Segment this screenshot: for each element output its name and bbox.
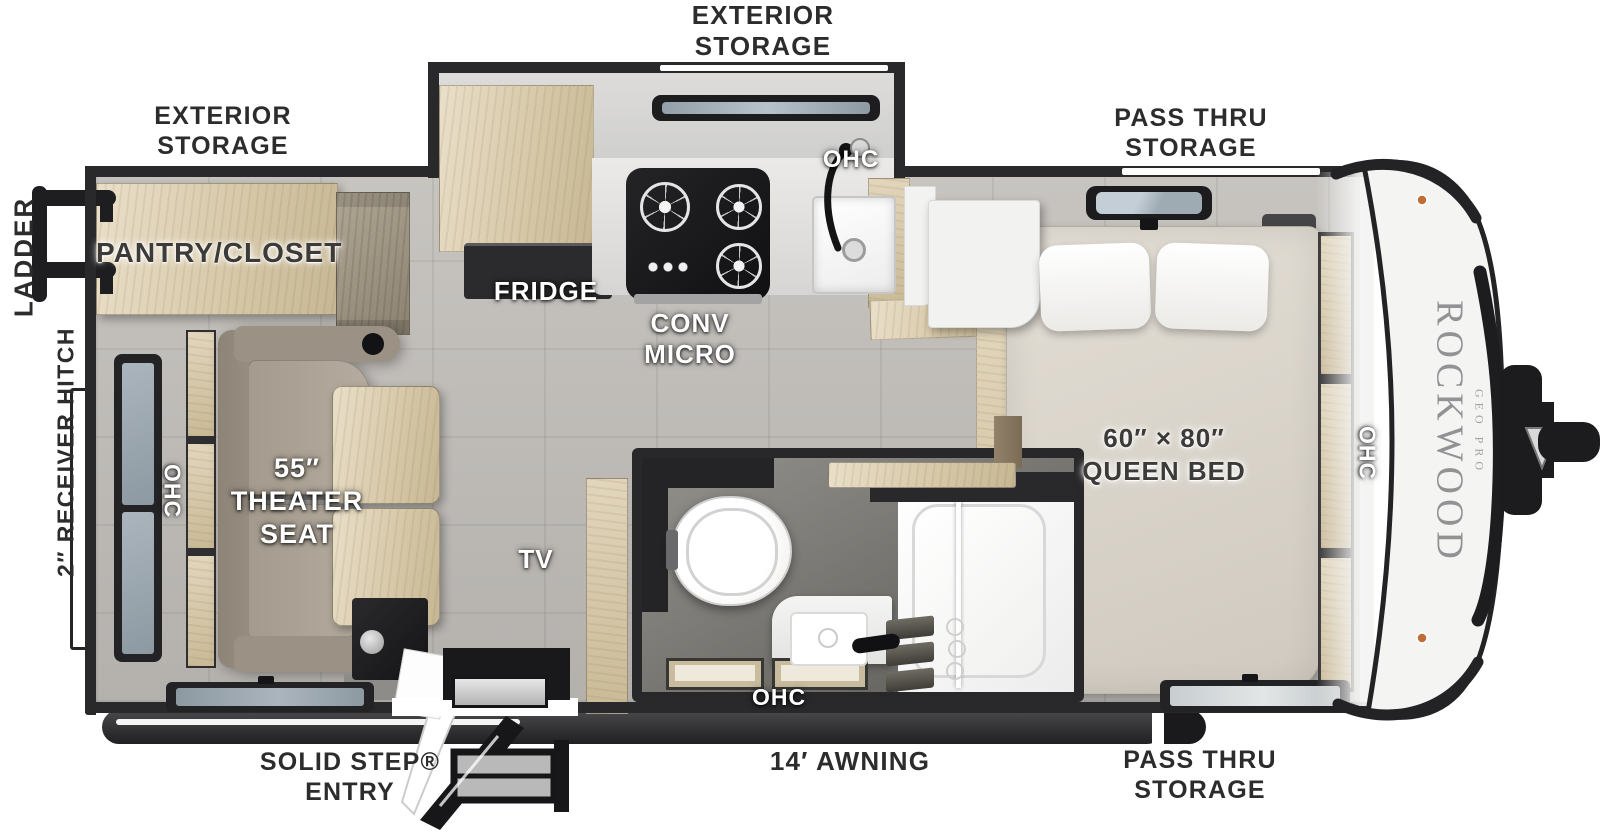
label-conv-micro: CONV MICRO <box>632 308 748 369</box>
cooktop-trim <box>634 294 762 304</box>
brand-make: ROCKWOOD <box>1428 300 1472 564</box>
label-ohc-bed: OHC <box>1353 426 1380 480</box>
cap-branding: GEO PRO ROCKWOOD <box>1428 300 1487 564</box>
slideout-wall-left <box>428 62 439 178</box>
wall-left <box>85 166 96 715</box>
shower-rod <box>956 496 961 688</box>
label-ohc-rear: OHC <box>158 464 185 518</box>
rear-window <box>114 354 162 662</box>
rear-window-glass-bottom <box>122 512 154 654</box>
skylight-glass <box>1096 192 1202 214</box>
bottom-window-left <box>166 682 374 712</box>
pantry-side-cabinet <box>336 192 410 335</box>
ohc-cabinet-rear <box>186 330 216 668</box>
floorplan-canvas: GEO PRO ROCKWOOD EXTERIOR STORAGE PASS T… <box>0 0 1600 832</box>
label-ohc-kitchen: OHC <box>814 146 888 174</box>
awning-roller <box>102 710 1164 744</box>
ohc-rear-door <box>188 556 214 666</box>
burner <box>716 184 762 230</box>
label-pass-thru-storage-top: PASS THRU STORAGE <box>1096 104 1286 163</box>
bottom-window-glass <box>176 688 364 706</box>
fireplace-knob <box>360 630 384 654</box>
skylight-vent <box>1086 186 1212 220</box>
pillow <box>1039 242 1152 332</box>
label-solid-step-entry: SOLID STEP® ENTRY <box>248 748 452 807</box>
label-awning: 14′ AWNING <box>750 746 950 777</box>
toilet-nook-wall <box>642 458 774 488</box>
slideout-trim <box>660 65 888 71</box>
seat-armrest-top <box>234 326 400 362</box>
brand-series: GEO PRO <box>1472 300 1487 564</box>
curtain-ring <box>946 662 964 680</box>
awning-gap <box>1152 708 1164 746</box>
partition-wall <box>586 478 628 714</box>
slideout-wall-right <box>894 62 905 178</box>
label-exterior-storage-left: EXTERIOR STORAGE <box>140 102 306 161</box>
marker-light <box>1417 195 1427 205</box>
entry-step-tray <box>452 676 548 708</box>
tray-inner <box>781 665 859 681</box>
wall-top-left <box>85 166 439 177</box>
label-fridge: FRIDGE <box>486 276 606 307</box>
pillow <box>1155 242 1270 332</box>
bottom-window-bed-glass <box>1170 686 1340 706</box>
cooktop-knobs <box>648 262 688 272</box>
tongue-jack-handle <box>1538 422 1600 462</box>
kitchen-cabinet <box>439 85 594 252</box>
label-pantry-closet: PANTRY/CLOSET <box>96 236 336 270</box>
wardrobe-cabinet <box>928 200 1040 328</box>
label-queen-bed: 60″ × 80″ QUEEN BED <box>1066 422 1262 487</box>
burner <box>640 182 690 232</box>
top-wall-window <box>1122 168 1320 175</box>
vanity-drain <box>818 628 838 648</box>
toilet-seat-line <box>686 508 778 596</box>
curtain-ring <box>946 618 964 636</box>
window-latch <box>258 676 274 684</box>
marker-light <box>1417 633 1427 643</box>
kitchen-window <box>652 95 880 121</box>
kitchen-window-glass <box>662 102 870 114</box>
label-ohc-bath: OHC <box>742 684 816 711</box>
ohc-rear-door <box>188 444 214 548</box>
label-tv: TV <box>508 544 564 575</box>
skylight-handle <box>1140 218 1158 230</box>
label-exterior-storage-top: EXTERIOR STORAGE <box>678 0 848 61</box>
label-theater-seat: 55″ THEATER SEAT <box>222 452 372 551</box>
toilet-hinge <box>666 530 678 570</box>
burner <box>716 243 762 289</box>
label-pass-thru-storage-bottom: PASS THRU STORAGE <box>1105 746 1295 805</box>
ohc-rear-door <box>188 332 214 436</box>
toilet <box>672 496 792 606</box>
awning-end-cap <box>1164 710 1206 744</box>
rear-window-glass-top <box>122 363 154 505</box>
label-receiver-hitch: 2″ RECEIVER HITCH <box>52 327 79 577</box>
tray-inner <box>675 665 755 681</box>
bath-counter-ledge <box>828 462 1016 488</box>
label-ladder: LADDER <box>9 197 40 317</box>
bath-wall-wood-strip <box>994 416 1022 468</box>
window-latch <box>1242 674 1258 682</box>
cupholder <box>362 333 384 355</box>
curtain-ring <box>948 640 966 658</box>
